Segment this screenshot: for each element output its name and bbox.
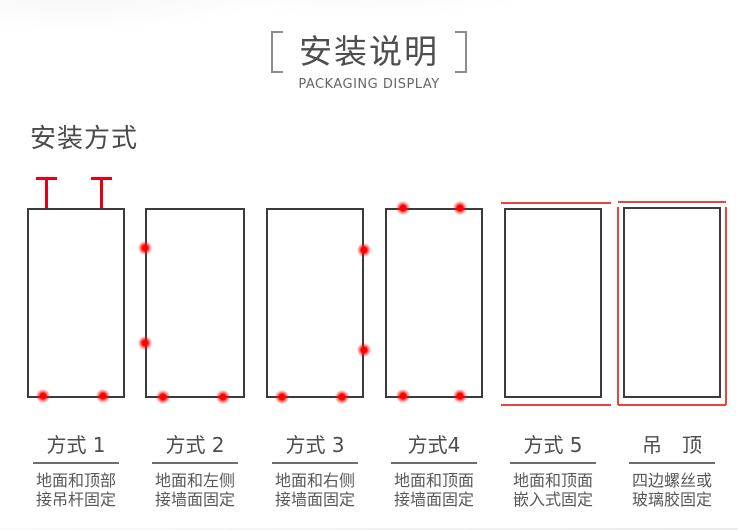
desc-line-1: 四边螺丝或	[623, 471, 721, 490]
method-description: 地面和顶面 接墙面固定	[385, 471, 483, 509]
method-description: 地面和顶面 嵌入式固定	[504, 471, 602, 509]
desc-line-2: 接墙面固定	[385, 490, 483, 509]
left-bracket-icon	[271, 31, 283, 73]
method-description: 地面和左侧 接墙面固定	[146, 471, 244, 509]
title-row: 安装说明	[271, 30, 467, 74]
method-description: 地面和右侧 接墙面固定	[266, 471, 364, 509]
method-label-3: 方式 3 地面和右侧 接墙面固定	[266, 432, 364, 509]
fix-point-dot	[357, 343, 371, 357]
fix-point-dot	[96, 389, 110, 403]
method-label-4: 方式4 地面和顶面 接墙面固定	[385, 432, 483, 509]
label-divider	[152, 462, 238, 464]
fix-point-dot	[396, 389, 410, 403]
label-divider	[629, 462, 715, 464]
seal-line-top	[618, 201, 726, 203]
recess-line-top	[501, 202, 611, 204]
method-label-1: 方式 1 地面和顶部 接吊杆固定	[27, 432, 125, 509]
installation-guide-page: 安装说明 PACKAGING DISPLAY 安装方式	[0, 0, 738, 530]
fix-point-dot	[138, 336, 152, 350]
fix-point-dot	[335, 390, 349, 404]
desc-line-1: 地面和左侧	[146, 471, 244, 490]
desc-line-1: 地面和顶面	[504, 471, 602, 490]
recess-line-bottom	[501, 404, 611, 406]
desc-line-1: 地面和顶面	[385, 471, 483, 490]
panel-outline	[623, 207, 721, 398]
page-subtitle: PACKAGING DISPLAY	[0, 77, 738, 92]
fix-point-dot	[396, 201, 410, 215]
fix-point-dot	[357, 243, 371, 257]
page-title: 安装说明	[299, 30, 439, 74]
seal-line-left	[617, 207, 619, 405]
label-divider	[33, 462, 119, 464]
method-name: 方式 1	[27, 432, 125, 458]
right-bracket-icon	[455, 31, 467, 73]
fix-point-dot	[138, 241, 152, 255]
page-header: 安装说明 PACKAGING DISPLAY	[0, 30, 738, 92]
method-name: 方式 5	[504, 432, 602, 458]
desc-line-2: 玻璃胶固定	[623, 490, 721, 509]
method-name: 方式 2	[146, 432, 244, 458]
desc-line-2: 嵌入式固定	[504, 490, 602, 509]
label-divider	[391, 462, 477, 464]
hanging-rod-stem-icon	[100, 177, 103, 208]
method-label-2: 方式 2 地面和左侧 接墙面固定	[146, 432, 244, 509]
panel-outline	[27, 208, 125, 398]
desc-line-2: 接吊杆固定	[27, 490, 125, 509]
method-name: 吊 顶	[623, 432, 721, 458]
method-name: 方式 3	[266, 432, 364, 458]
seal-line-right	[725, 207, 727, 405]
method-description: 地面和顶部 接吊杆固定	[27, 471, 125, 509]
panel-outline	[385, 208, 483, 398]
fix-point-dot	[156, 390, 170, 404]
panel-outline	[145, 208, 245, 398]
fix-point-dot	[216, 390, 230, 404]
fix-point-dot	[453, 389, 467, 403]
section-title: 安装方式	[30, 118, 138, 155]
fix-point-dot	[453, 201, 467, 215]
panel-outline	[504, 208, 602, 398]
panel-outline	[266, 208, 364, 398]
desc-line-1: 地面和顶部	[27, 471, 125, 490]
desc-line-2: 接墙面固定	[146, 490, 244, 509]
desc-line-1: 地面和右侧	[266, 471, 364, 490]
label-divider	[510, 462, 596, 464]
method-name: 方式4	[385, 432, 483, 458]
label-divider	[272, 462, 358, 464]
hanging-rod-stem-icon	[45, 177, 48, 208]
method-label-ceiling: 吊 顶 四边螺丝或 玻璃胶固定	[623, 432, 721, 509]
fix-point-dot	[275, 390, 289, 404]
desc-line-2: 接墙面固定	[266, 490, 364, 509]
seal-line-bottom	[618, 404, 726, 406]
method-label-5: 方式 5 地面和顶面 嵌入式固定	[504, 432, 602, 509]
fix-point-dot	[36, 389, 50, 403]
method-description: 四边螺丝或 玻璃胶固定	[623, 471, 721, 509]
